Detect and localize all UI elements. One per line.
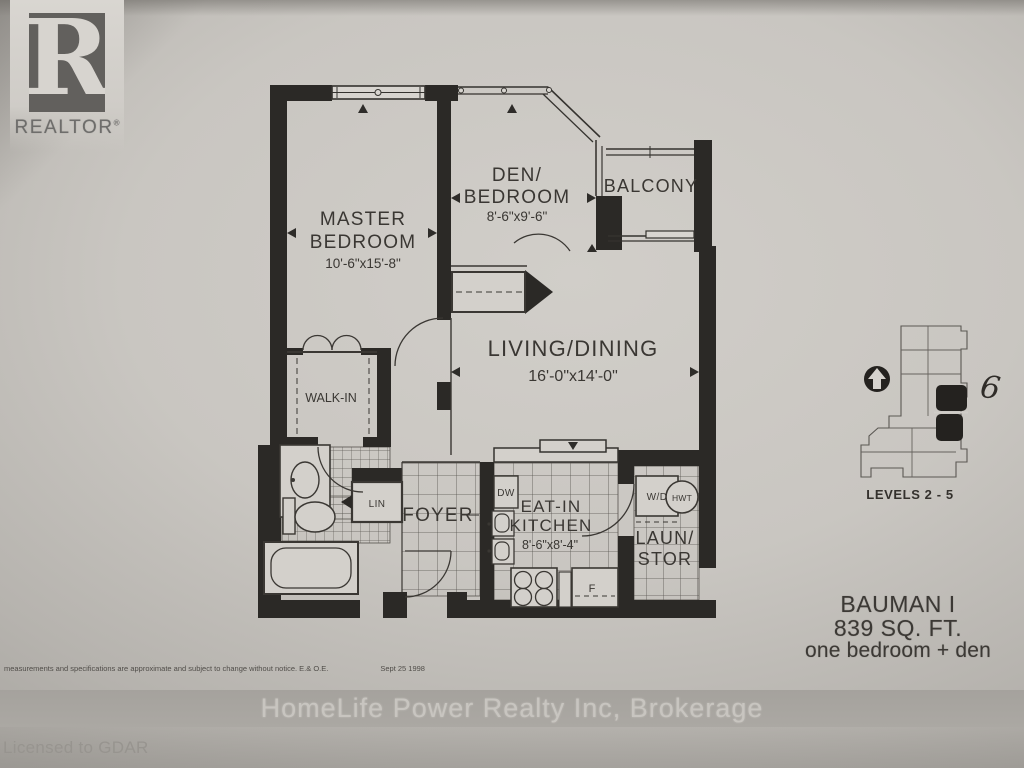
den-label-2: BEDROOM — [464, 187, 571, 208]
den-window — [458, 87, 600, 142]
master-window — [332, 86, 425, 99]
unit-area: 839 SQ. FT. — [776, 617, 1020, 641]
master-dims: 10'-6"x15'-8" — [325, 256, 401, 271]
walkin-door-right — [332, 336, 361, 351]
den-dims: 8'-6"x9'-6" — [487, 209, 548, 224]
keyplan-unit-highlight-upper — [936, 385, 967, 411]
master-door — [395, 318, 443, 366]
floorplan-photo: R REALTOR® — [0, 0, 1024, 768]
brokerage-watermark: HomeLife Power Realty Inc, Brokerage — [261, 693, 764, 724]
licensed-note: Licensed to GDAR — [3, 738, 149, 758]
model-name: BAUMAN I — [776, 593, 1020, 617]
kitchen-label-1: EAT-IN — [521, 497, 582, 516]
watermark-band: HomeLife Power Realty Inc, Brokerage — [0, 690, 1024, 727]
kitchen-dims: 8'-6"x8'-4" — [522, 538, 578, 552]
kitchen-counter-strip — [559, 572, 571, 607]
toilet-tank — [283, 498, 295, 534]
walkin-door-left — [303, 336, 332, 351]
toilet-bowl — [295, 502, 335, 532]
foyer-label: FOYER — [402, 505, 473, 526]
keyplan: 6 LEVELS 2 - 5 — [861, 326, 1003, 502]
master-label-1: MASTER — [320, 209, 406, 230]
balcony-label: BALCONY — [604, 176, 698, 196]
title-block: BAUMAN I 839 SQ. FT. one bedroom + den — [776, 593, 1020, 662]
walkin-label: WALK-IN — [305, 391, 357, 405]
washer-dryer-label: W/D — [647, 492, 668, 503]
disclaimer-text: measurements and specifications are appr… — [4, 664, 328, 673]
living-label: LIVING/DINING — [488, 336, 659, 361]
keyplan-levels-label: LEVELS 2 - 5 — [866, 487, 953, 502]
disclaimer-date: Sept 25 1998 — [380, 664, 425, 673]
keyplan-unit-number: 6 — [978, 369, 1003, 407]
linen-label: LIN — [369, 499, 386, 510]
bath-sink — [291, 462, 319, 498]
disclaimer: measurements and specifications are appr… — [4, 664, 425, 673]
laundry-label-1: LAUN/ — [635, 528, 694, 548]
balcony-railing — [606, 146, 694, 158]
den-label-1: DEN/ — [492, 165, 542, 186]
living-dims: 16'-0"x14'-0" — [528, 368, 618, 385]
dishwasher-label: DW — [497, 488, 515, 499]
master-label-2: BEDROOM — [310, 232, 417, 253]
fridge-label: F — [589, 583, 596, 595]
kitchen-counter — [494, 440, 618, 462]
hot-water-tank-label: HWT — [672, 493, 692, 503]
keyplan-unit-highlight-lower — [936, 414, 963, 441]
laundry-label-2: STOR — [638, 549, 692, 569]
unit-type: one bedroom + den — [776, 640, 1020, 662]
kitchen-label-2: KITCHEN — [509, 516, 592, 535]
den-door — [514, 234, 570, 251]
foyer-tile — [402, 463, 480, 596]
